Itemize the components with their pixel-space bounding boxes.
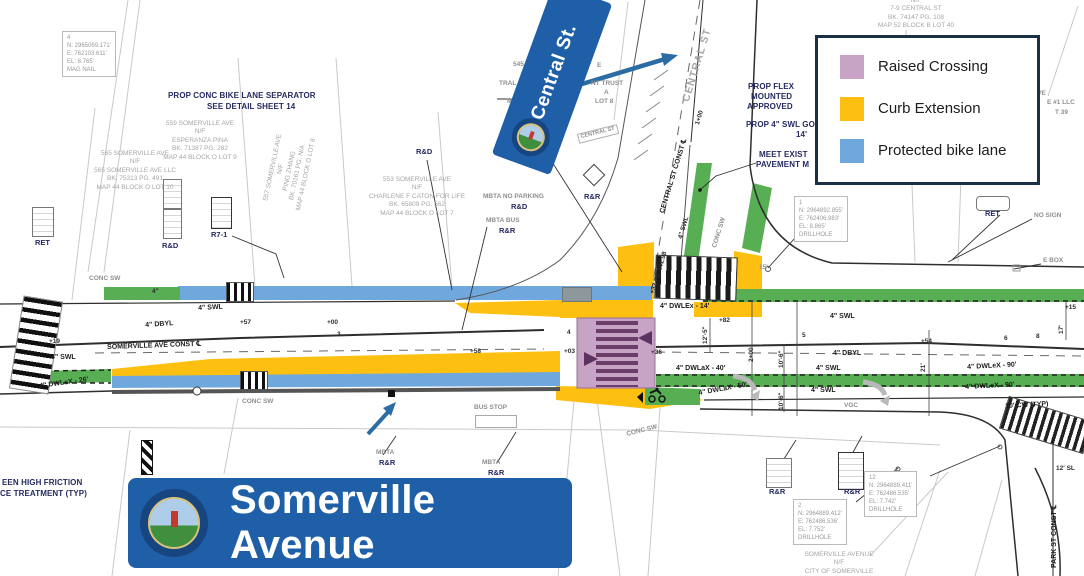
plan-label: BUS STOP	[474, 405, 507, 412]
plan-label: +82	[719, 318, 730, 325]
somerville-city-seal-icon	[140, 489, 208, 557]
plan-label: PROP FLEX	[748, 83, 794, 91]
plan-label: T 39	[1055, 110, 1068, 117]
plan-label: +54	[921, 339, 932, 346]
plan-label: SOMERVILLE AVE CONST ℄	[107, 341, 201, 351]
plan-label: 12' SL	[1056, 466, 1075, 473]
plan-label: LOT 8	[595, 99, 613, 106]
plan-label: 4"	[152, 289, 159, 296]
plan-label: APPROVED	[747, 103, 793, 111]
plan-label: 4" SWL	[816, 365, 841, 372]
plan-label: +57	[240, 320, 251, 327]
plan-label: VGC	[844, 403, 858, 410]
plan-label: PAVEMENT M	[756, 161, 809, 169]
plan-label: 15'	[759, 265, 768, 272]
legend-swatch	[840, 139, 864, 163]
plan-label: 12'-5"	[703, 326, 710, 344]
plan-label: 4" DWLaX - 40'	[676, 365, 725, 372]
plan-label: NT TRUST	[591, 81, 623, 88]
plan-label: 4" DBYL	[833, 350, 861, 357]
plan-label: RET	[985, 210, 1000, 218]
plan-label: CONC SW	[712, 217, 727, 249]
plan-label: CE TREATMENT (TYP)	[0, 490, 87, 498]
plan-label: 4" SWL	[830, 313, 855, 320]
plan-label: R&R	[584, 193, 600, 201]
plan-label: E #1 LLC	[1047, 100, 1075, 107]
plan-label: 3	[337, 332, 341, 339]
plan-label: 5	[802, 333, 806, 340]
parcel-text: N/F7-9 CENTRAL STBK. 74147 PG. 108MAP 52…	[846, 0, 986, 31]
plan-label: RET	[35, 239, 50, 247]
legend-label: Raised Crossing	[878, 58, 988, 75]
survey-databox: 1N: 2964892.855'E: 762406.983'EL: 8.865'…	[794, 196, 848, 242]
legend-item: Raised Crossing	[840, 54, 1037, 79]
plan-label: 4" SWL	[678, 216, 691, 240]
plan-label: R7-1	[211, 231, 227, 239]
plan-label: CENTRAL ST	[681, 27, 713, 103]
plan-label: 14'	[796, 131, 807, 139]
plan-label: +32 PC +41.98	[650, 251, 669, 295]
plan-label: R&D	[162, 242, 178, 250]
plan-label: 6	[1004, 336, 1008, 343]
plan-label: CONC SW	[242, 399, 273, 406]
plan-label: 4" SWL	[51, 354, 76, 361]
legend-swatch	[840, 97, 864, 121]
legend-item: Curb Extension	[840, 96, 1037, 121]
plan-label: 2+00	[749, 347, 756, 362]
plan-label: 4" DWLeX - 90'	[967, 361, 1017, 371]
plan-label: PROP 4" SWL GO	[746, 121, 815, 129]
plan-label: CONC SW	[89, 276, 120, 283]
plan-label: 4" SWL	[811, 387, 836, 394]
plan-label: R&R	[844, 488, 860, 496]
somerville-avenue-banner: Somerville Avenue	[128, 478, 572, 568]
legend: Raised Crossing Curb Extension Protected…	[815, 35, 1040, 185]
legend-label: Protected bike lane	[878, 142, 1006, 159]
plan-label: MBTA	[376, 450, 394, 457]
plan-label: +36	[651, 350, 662, 357]
plan-label: A	[604, 90, 609, 97]
somerville-avenue-banner-label: Somerville Avenue	[230, 478, 572, 568]
plan-label: EEN HIGH FRICTION	[2, 479, 82, 487]
parcel-text: 553 SOMERVILLE AVEN/FCHARLENE F CATON FO…	[347, 176, 487, 218]
plan-label: +19	[49, 339, 60, 346]
plan-label: MEET EXIST	[759, 151, 808, 159]
plan-label: +58	[470, 349, 481, 356]
plan-label: 1+00	[695, 110, 706, 126]
plan-label: E BOX	[1043, 258, 1063, 265]
legend-swatch	[840, 55, 864, 79]
plan-label: R&R	[488, 469, 504, 477]
plan-label: 4" DWLaX - 50'	[698, 381, 748, 396]
plan-label: 10' CW (TYP)	[1005, 401, 1049, 410]
plan-sheet: PROP CONC BIKE LANE SEPARATORSEE DETAIL …	[0, 0, 1084, 576]
plan-label: 4" SWL	[198, 304, 223, 312]
survey-databox: 12N: 2964889.411'E: 762486.535'EL: 7.742…	[864, 471, 917, 517]
plan-label: 10'-6"	[779, 392, 786, 410]
plan-label: 4" DWLEx - 14'	[660, 303, 709, 310]
plan-label: R&D	[511, 203, 527, 211]
plan-label: NO SIGN	[1034, 213, 1061, 220]
plan-label: 4	[567, 330, 571, 337]
plan-label: +00	[327, 320, 338, 327]
plan-label: PARK ST CONST ℄	[1051, 505, 1058, 568]
plan-label: CENTRAL ST CONST ℄	[659, 138, 688, 214]
plan-label: PROP CONC BIKE LANE SEPARATOR	[168, 92, 316, 100]
plan-label: +15	[1065, 305, 1076, 312]
plan-label: R&D	[416, 148, 432, 156]
plan-label: 21'	[921, 363, 928, 372]
survey-databox: 4N: 2965069.171'E: 762103.611'EL: 8.765'…	[62, 31, 116, 77]
plan-label: 4" DWLeX - 26'	[39, 376, 89, 390]
plan-label: CONC SW	[626, 424, 658, 438]
survey-databox: 2N: 2964889.412'E: 762486.536'EL: 7.752'…	[793, 499, 847, 545]
plan-label: +03	[564, 349, 575, 356]
plan-label: MBTA BUS	[486, 218, 520, 225]
legend-label: Curb Extension	[878, 100, 981, 117]
legend-item: Protected bike lane	[840, 138, 1037, 163]
plan-label: 4" DWLeX - 90'	[965, 381, 1015, 391]
plan-label: R&R	[769, 488, 785, 496]
plan-label: R&R	[499, 227, 515, 235]
plan-label: R&R	[379, 459, 395, 467]
plan-label: MBTA	[482, 460, 500, 467]
plan-label: 8	[1036, 334, 1040, 341]
plan-label: MBTA NO PARKING	[483, 194, 544, 201]
plan-label: 17'	[1059, 325, 1066, 334]
plan-label: 4" DBYL	[145, 320, 174, 329]
plan-label: MOUNTED	[751, 93, 792, 101]
parcel-text: SOMERVILLE AVENUEN/FCITY OF SOMERVILLE	[769, 551, 909, 576]
plan-label: 10'-6"	[779, 350, 786, 368]
parcel-text: 559 SOMERVILLE AVEN/FESPERANZA PINABK. 7…	[130, 120, 270, 162]
plan-label: E	[597, 63, 601, 70]
plan-label: CENTRAL ST	[577, 124, 619, 143]
